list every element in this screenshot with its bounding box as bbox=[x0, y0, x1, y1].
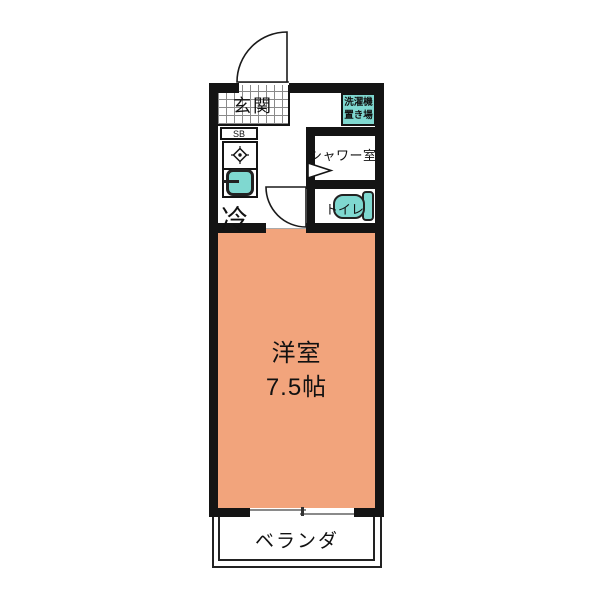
wall-bottom-right-segment bbox=[354, 508, 384, 517]
window-pane-right bbox=[300, 513, 354, 515]
wall-mainroom-top-right-segment bbox=[306, 223, 384, 233]
toilet-label: トイレ bbox=[325, 199, 364, 218]
shoe-box: SB bbox=[220, 127, 258, 140]
wall-top-right-segment bbox=[289, 83, 384, 93]
shoe-box-label: SB bbox=[233, 129, 245, 139]
floor-plan: 玄関 SB 冷 洗濯機 置き場 シャワー室 トイレ 洋室 7.5帖 ベランダ bbox=[0, 0, 600, 600]
washing-label-line2: 置き場 bbox=[344, 110, 373, 122]
main-room-size: 7.5帖 bbox=[218, 367, 375, 402]
entrance-label: 玄関 bbox=[233, 92, 273, 118]
mainroom-door-swing-icon bbox=[266, 187, 306, 227]
doorway-threshold bbox=[266, 228, 306, 235]
wall-left bbox=[209, 83, 218, 517]
entrance-door-swing-icon bbox=[237, 32, 287, 82]
wall-bottom-left-segment bbox=[209, 508, 250, 517]
fridge-space-label: 冷 bbox=[221, 198, 248, 237]
veranda-label: ベランダ bbox=[212, 526, 382, 553]
wall-washing-divider bbox=[306, 127, 384, 136]
window-pane-left bbox=[250, 509, 306, 511]
wall-top-left-segment bbox=[209, 83, 239, 93]
washing-label-line1: 洗濯機 bbox=[344, 97, 373, 109]
faucet-icon bbox=[223, 180, 239, 183]
main-room-label: 洋室 bbox=[218, 333, 375, 368]
wall-shower-toilet-divider bbox=[306, 180, 384, 189]
shower-room-label: シャワー室 bbox=[309, 145, 377, 164]
window-center-tick bbox=[301, 507, 304, 516]
burner-cell bbox=[224, 143, 256, 170]
washing-machine-place: 洗濯機 置き場 bbox=[341, 93, 376, 126]
